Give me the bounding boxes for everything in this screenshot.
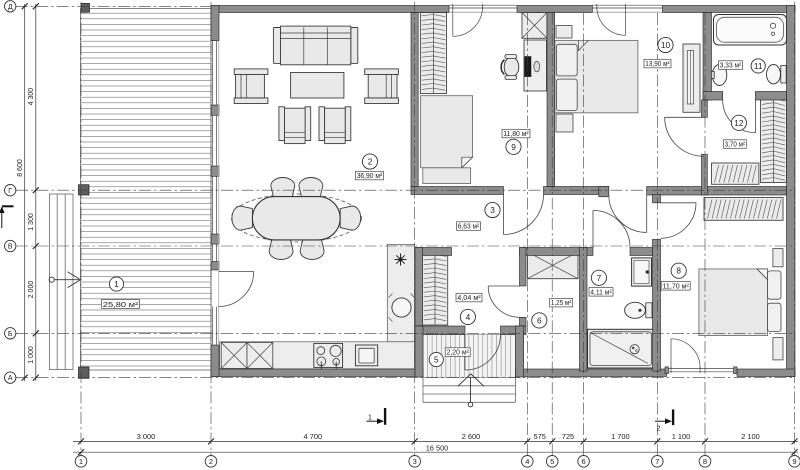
svg-text:2,20 м²: 2,20 м² — [447, 350, 470, 357]
svg-text:11,80 м²: 11,80 м² — [503, 131, 529, 138]
svg-text:575: 575 — [534, 432, 546, 441]
svg-text:25,80 м²: 25,80 м² — [103, 302, 139, 309]
svg-text:3: 3 — [490, 205, 495, 215]
svg-text:8: 8 — [703, 457, 707, 466]
svg-text:Г: Г — [8, 188, 12, 195]
svg-text:2: 2 — [657, 426, 661, 433]
svg-text:4,11 м²: 4,11 м² — [590, 289, 612, 296]
svg-text:В: В — [8, 244, 13, 251]
svg-text:6: 6 — [582, 457, 586, 466]
svg-text:2: 2 — [368, 157, 373, 167]
svg-text:11: 11 — [754, 61, 763, 71]
svg-text:3,70 м²: 3,70 м² — [725, 142, 746, 149]
svg-text:8: 8 — [676, 266, 681, 276]
svg-text:3,33 м²: 3,33 м² — [720, 63, 742, 70]
svg-text:4 300: 4 300 — [28, 88, 35, 106]
svg-text:10: 10 — [661, 40, 671, 50]
svg-text:3 000: 3 000 — [137, 432, 156, 441]
svg-text:7: 7 — [597, 273, 602, 283]
svg-text:8 600: 8 600 — [17, 159, 24, 177]
svg-text:1: 1 — [368, 415, 372, 422]
svg-text:2 000: 2 000 — [28, 281, 35, 299]
svg-text:1 000: 1 000 — [28, 346, 35, 364]
svg-text:Д: Д — [8, 4, 13, 11]
svg-text:7: 7 — [655, 457, 659, 466]
svg-text:2 600: 2 600 — [462, 432, 481, 441]
svg-text:9: 9 — [792, 457, 796, 466]
svg-text:5: 5 — [434, 355, 439, 365]
svg-text:2: 2 — [209, 457, 213, 466]
svg-text:1 100: 1 100 — [672, 432, 691, 441]
svg-text:Б: Б — [8, 331, 13, 338]
svg-text:2 100: 2 100 — [741, 432, 760, 441]
svg-text:16 500: 16 500 — [426, 444, 449, 453]
svg-text:12: 12 — [734, 118, 744, 128]
svg-text:1 700: 1 700 — [611, 432, 630, 441]
svg-text:36,90 м²: 36,90 м² — [357, 173, 383, 180]
svg-text:9: 9 — [511, 142, 516, 152]
svg-text:3: 3 — [413, 457, 417, 466]
svg-text:1: 1 — [114, 279, 119, 289]
svg-text:11,70 м²: 11,70 м² — [663, 283, 690, 290]
svg-text:1 300: 1 300 — [28, 213, 35, 231]
svg-text:5: 5 — [550, 457, 554, 466]
svg-text:725: 725 — [562, 432, 574, 441]
svg-text:А: А — [8, 375, 13, 382]
svg-text:6: 6 — [537, 315, 542, 325]
svg-text:6,63 м²: 6,63 м² — [458, 224, 480, 231]
svg-text:4: 4 — [466, 312, 471, 322]
svg-text:1: 1 — [79, 457, 83, 466]
svg-text:4 700: 4 700 — [304, 432, 323, 441]
svg-text:13,90 м²: 13,90 м² — [645, 61, 670, 68]
svg-text:1,25 м²: 1,25 м² — [551, 300, 572, 307]
svg-text:4: 4 — [525, 457, 529, 466]
svg-text:4,04 м²: 4,04 м² — [457, 295, 481, 302]
